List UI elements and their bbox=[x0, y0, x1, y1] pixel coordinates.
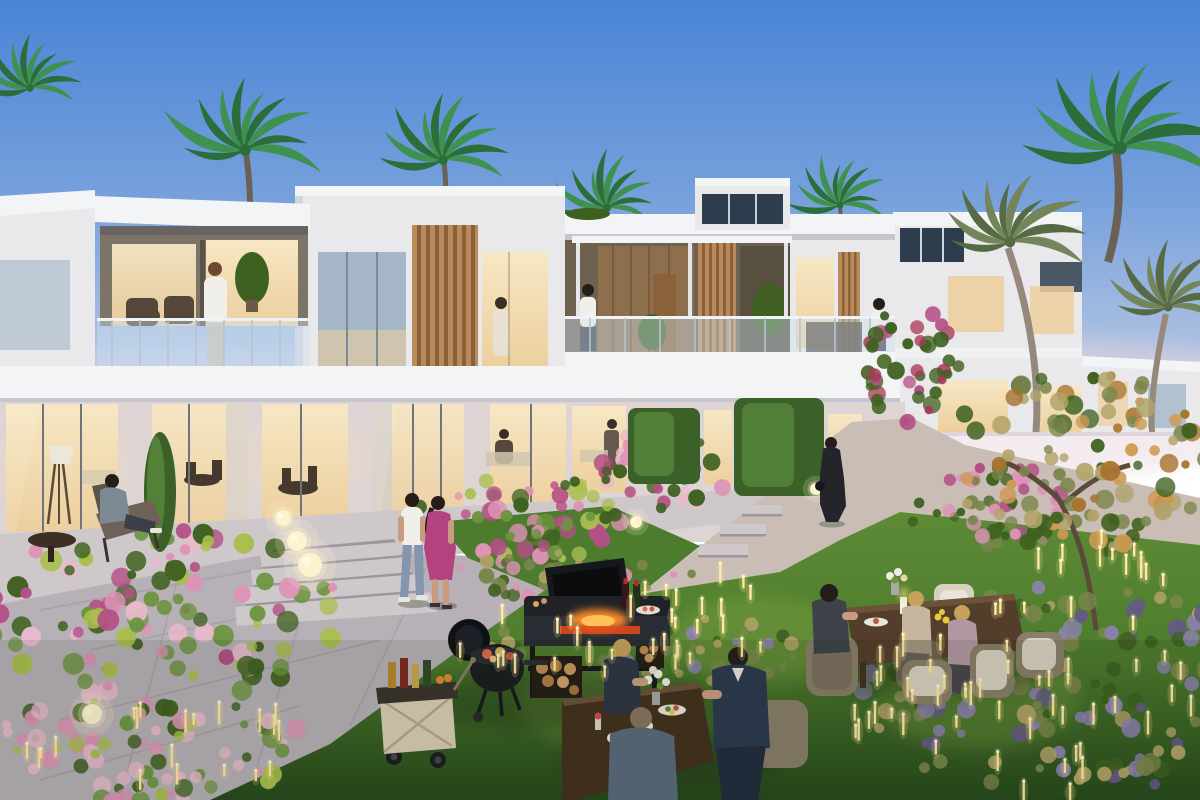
left-balcony bbox=[95, 196, 310, 370]
community-render: architectural dusk rendering bbox=[0, 0, 1200, 800]
vignette bbox=[0, 640, 1200, 800]
lit-window bbox=[948, 276, 1004, 332]
clerestory-box bbox=[695, 178, 790, 230]
pergola-beam bbox=[572, 236, 792, 243]
balcony-plant bbox=[235, 252, 269, 304]
glass-railing bbox=[97, 320, 310, 370]
lit-window bbox=[1030, 286, 1074, 334]
scene-canvas: architectural dusk rendering bbox=[0, 0, 1200, 800]
orb-lamp bbox=[284, 539, 337, 592]
clerestory-window bbox=[900, 228, 964, 262]
plate bbox=[636, 606, 660, 615]
upper-window bbox=[0, 260, 70, 350]
vase bbox=[891, 582, 899, 595]
coffee-table bbox=[28, 532, 76, 548]
hedge-block bbox=[628, 408, 700, 484]
balcony-recess bbox=[565, 236, 895, 355]
lit-window bbox=[482, 252, 548, 368]
roof-plants bbox=[566, 208, 610, 220]
orb-lamp bbox=[623, 509, 649, 535]
timber-slat-panel bbox=[412, 225, 478, 372]
cypress bbox=[144, 432, 176, 552]
